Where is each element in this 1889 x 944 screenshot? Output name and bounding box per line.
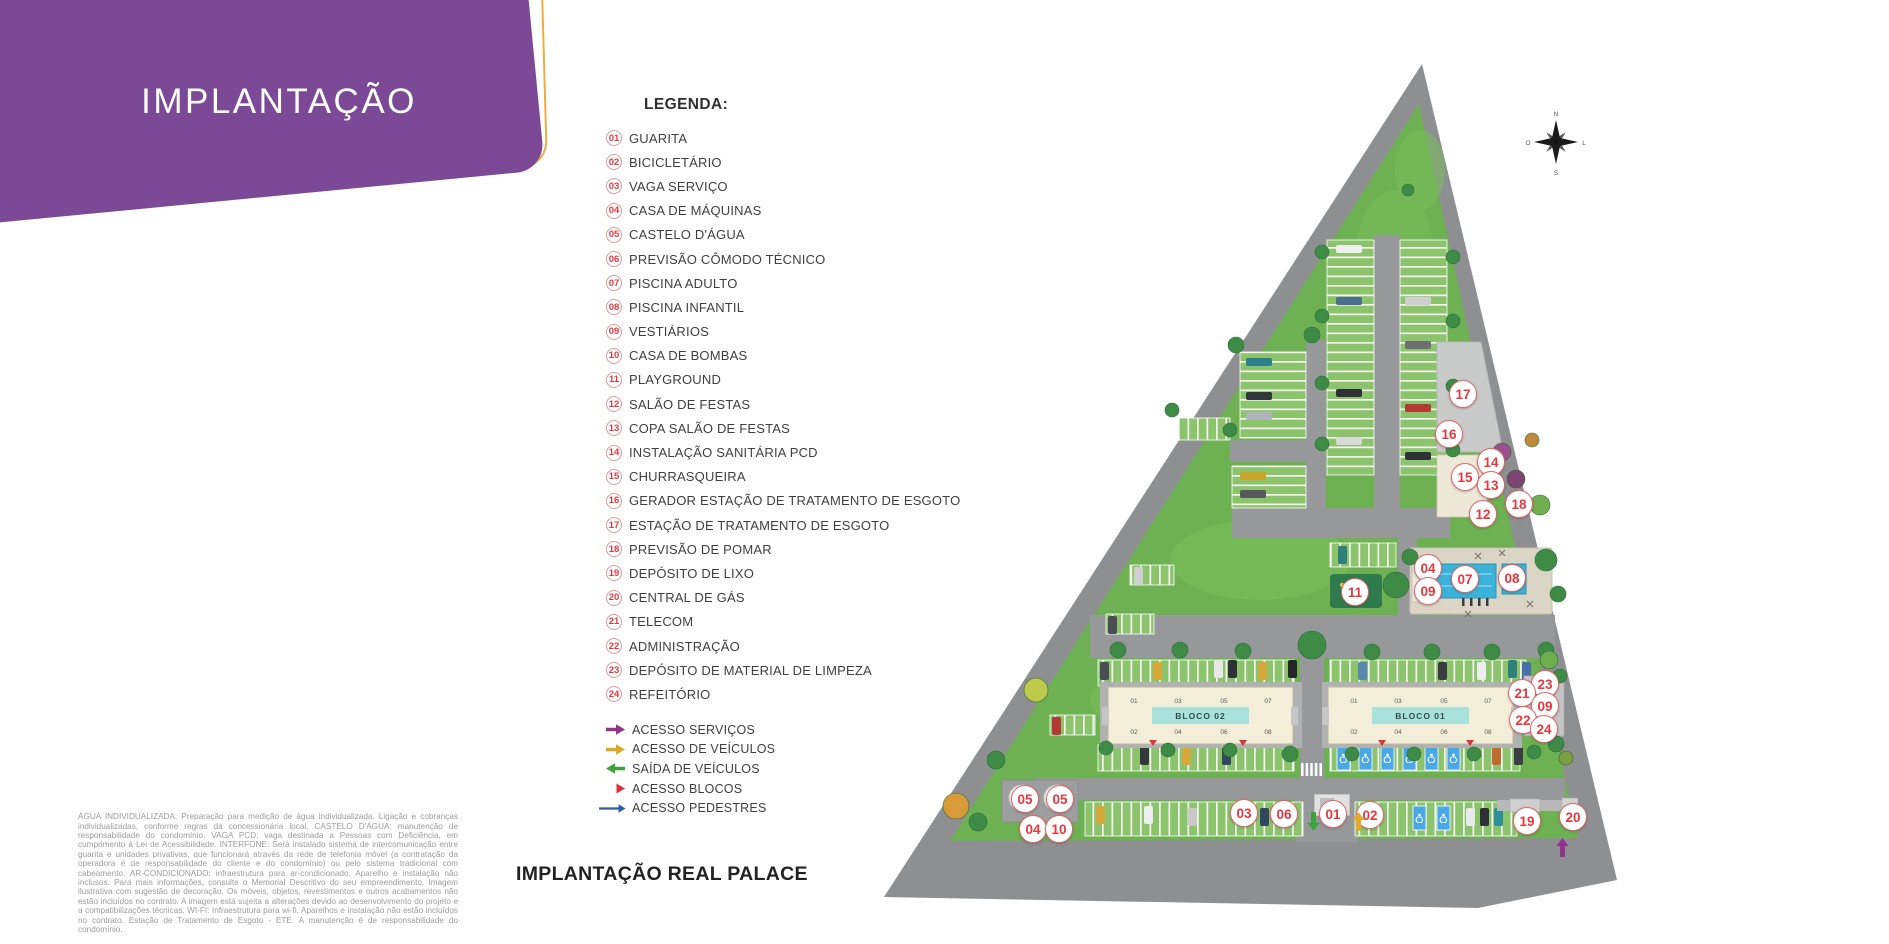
svg-text:N: N — [1554, 111, 1559, 118]
svg-text:01: 01 — [1130, 698, 1138, 705]
svg-text:06: 06 — [1440, 729, 1448, 736]
svg-text:07: 07 — [1484, 698, 1492, 705]
map-marker-04: 04 — [1019, 815, 1047, 843]
svg-text:04: 04 — [1174, 729, 1182, 736]
svg-text:O: O — [1525, 140, 1530, 147]
map-marker-09: 09 — [1414, 577, 1442, 605]
map-marker-07: 07 — [1451, 565, 1479, 593]
map-marker-20: 20 — [1559, 803, 1587, 831]
map-marker-16: 16 — [1435, 420, 1463, 448]
svg-text:03: 03 — [1174, 698, 1182, 705]
svg-text:03: 03 — [1394, 698, 1402, 705]
map-marker-01: 01 — [1319, 800, 1347, 828]
map-marker-24: 24 — [1530, 715, 1558, 743]
svg-text:L: L — [1582, 140, 1586, 147]
map-marker-12: 12 — [1469, 500, 1497, 528]
site-plan-slide: IMPLANTAÇÃO LEGENDA: 01GUARITA02BICICLET… — [0, 0, 1889, 944]
map-marker-05: 05 — [1011, 785, 1039, 813]
svg-text:02: 02 — [1130, 729, 1138, 736]
svg-text:05: 05 — [1220, 698, 1228, 705]
map-marker-03: 03 — [1230, 799, 1258, 827]
map-marker-11: 11 — [1341, 578, 1369, 606]
map-marker-13: 13 — [1477, 471, 1505, 499]
svg-text:08: 08 — [1264, 729, 1272, 736]
map-marker-18: 18 — [1505, 490, 1533, 518]
map-marker-05: 05 — [1046, 785, 1074, 813]
svg-text:01: 01 — [1350, 698, 1358, 705]
svg-text:08: 08 — [1484, 729, 1492, 736]
svg-text:04: 04 — [1394, 729, 1402, 736]
map-marker-17: 17 — [1449, 380, 1477, 408]
svg-text:BLOCO 01: BLOCO 01 — [1395, 711, 1446, 721]
compass-rose-icon: N L S O — [1525, 111, 1586, 177]
svg-text:07: 07 — [1264, 698, 1272, 705]
svg-text:S: S — [1554, 170, 1559, 177]
site-map-graphic: BLOCO 020103050702040608BLOCO 0101030507… — [0, 0, 1889, 944]
svg-text:05: 05 — [1440, 698, 1448, 705]
map-marker-06: 06 — [1270, 800, 1298, 828]
map-marker-19: 19 — [1513, 807, 1541, 835]
site-map: BLOCO 020103050702040608BLOCO 0101030507… — [0, 0, 1889, 944]
svg-text:BLOCO 02: BLOCO 02 — [1175, 711, 1226, 721]
svg-text:06: 06 — [1220, 729, 1228, 736]
svg-text:02: 02 — [1350, 729, 1358, 736]
map-marker-15: 15 — [1451, 463, 1479, 491]
map-marker-08: 08 — [1498, 564, 1526, 592]
map-marker-10: 10 — [1045, 815, 1073, 843]
